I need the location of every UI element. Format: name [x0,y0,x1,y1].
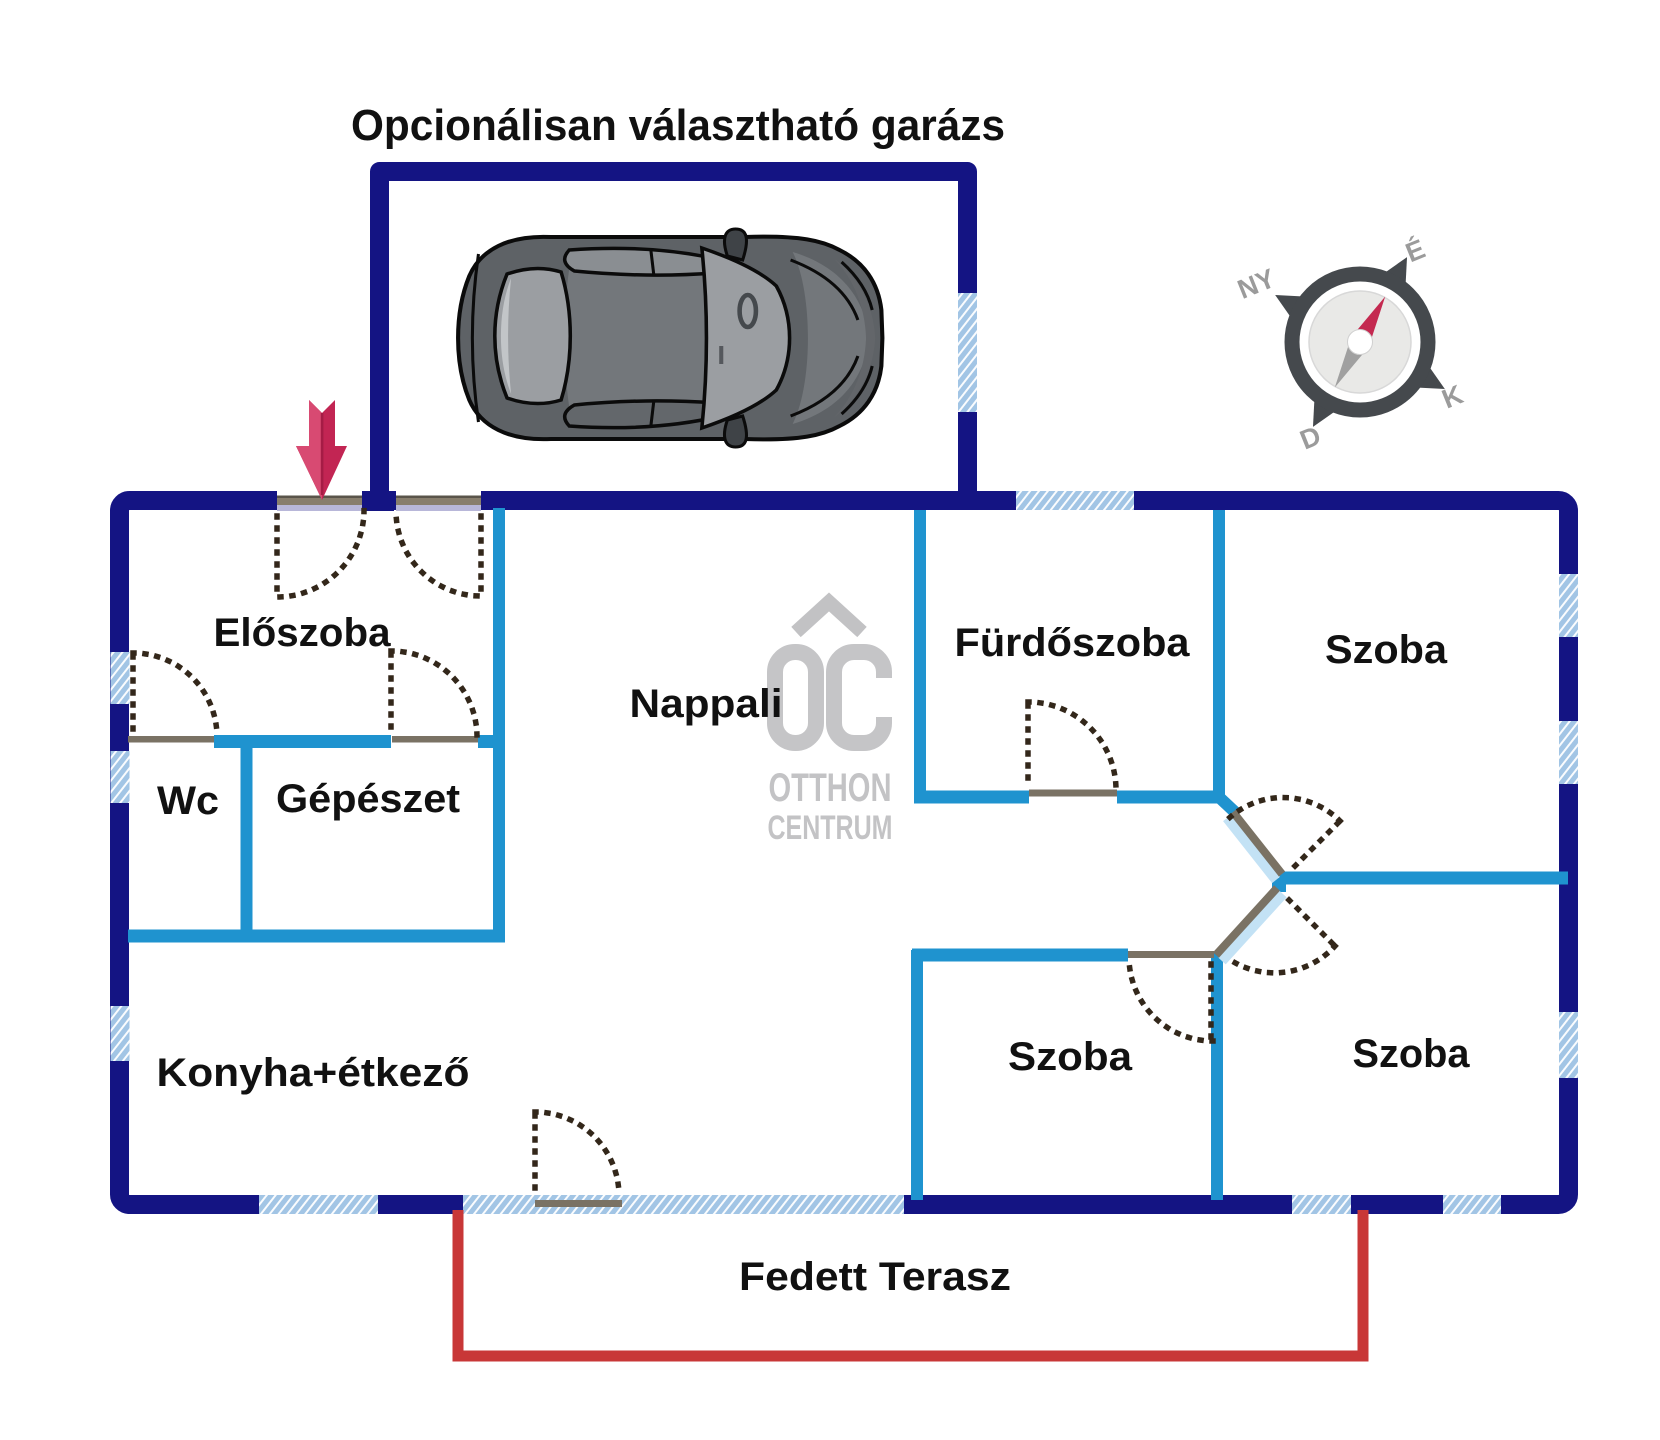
svg-text:Szoba: Szoba [1008,1035,1133,1079]
svg-text:Fedett Terasz: Fedett Terasz [739,1255,1011,1299]
svg-text:Konyha+étkező: Konyha+étkező [157,1051,470,1095]
svg-text:Szoba: Szoba [1325,628,1448,672]
svg-text:Gépészet: Gépészet [276,777,460,821]
svg-text:CENTRUM: CENTRUM [768,809,893,847]
svg-text:Előszoba: Előszoba [214,611,392,655]
svg-text:Wc: Wc [157,779,219,823]
svg-text:OTTHON: OTTHON [769,766,892,810]
svg-text:Opcionálisan választható garáz: Opcionálisan választható garázs [351,101,1005,150]
svg-text:Fürdőszoba: Fürdőszoba [955,621,1191,665]
svg-text:Szoba: Szoba [1353,1032,1471,1076]
svg-text:Nappali: Nappali [630,682,783,726]
